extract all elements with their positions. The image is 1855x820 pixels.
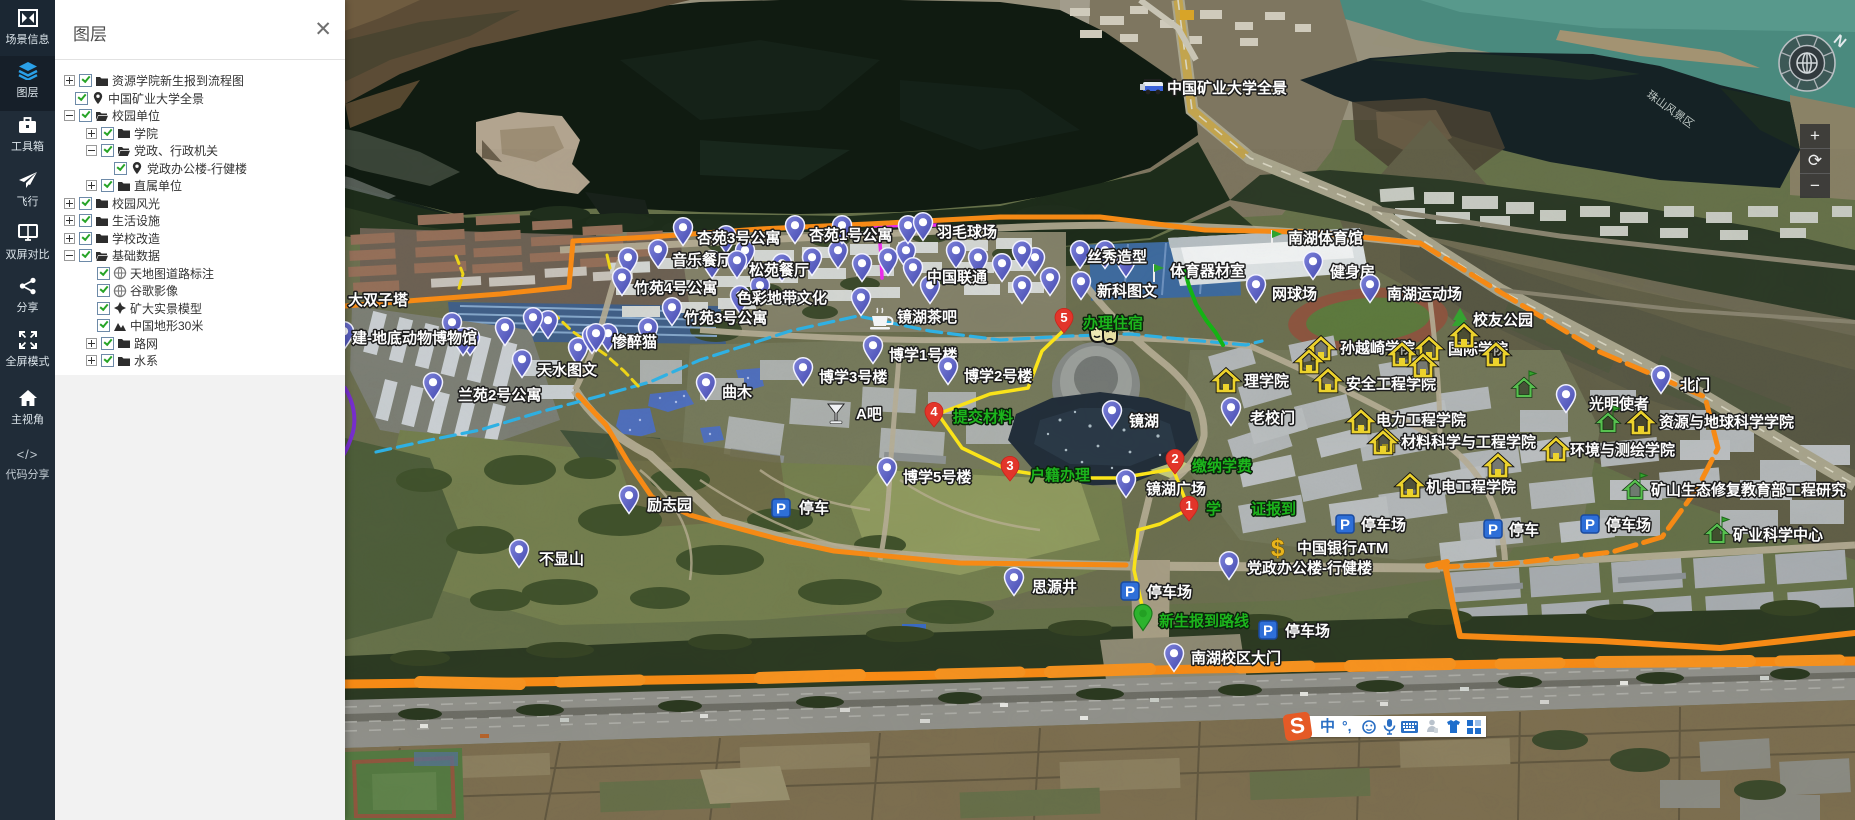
svg-text:杏苑1号公寓: 杏苑1号公寓 — [808, 226, 892, 244]
svg-text:环境与测绘学院: 环境与测绘学院 — [1570, 441, 1675, 459]
svg-text:大双子塔: 大双子塔 — [348, 291, 409, 309]
svg-text:停车: 停车 — [1509, 521, 1539, 539]
svg-text:镜湖: 镜湖 — [1129, 412, 1159, 430]
svg-text:博学5号楼: 博学5号楼 — [903, 468, 971, 486]
svg-text:矿业科学中心: 矿业科学中心 — [1733, 526, 1823, 544]
svg-text:$: $ — [1271, 535, 1285, 562]
svg-text:材料科学与工程学院: 材料科学与工程学院 — [1401, 433, 1536, 451]
svg-text:1: 1 — [1185, 498, 1192, 513]
svg-text:电力工程学院: 电力工程学院 — [1376, 411, 1466, 429]
svg-text:老校门: 老校门 — [1249, 409, 1295, 427]
svg-text:证报到: 证报到 — [1251, 500, 1296, 518]
svg-text:竹苑4号公寓: 竹苑4号公寓 — [633, 279, 717, 297]
svg-text:2: 2 — [1171, 451, 1178, 466]
svg-text:天水图文: 天水图文 — [537, 361, 598, 379]
svg-text:停车场: 停车场 — [1285, 622, 1330, 640]
svg-text:不显山: 不显山 — [539, 551, 584, 568]
svg-text:曲木: 曲木 — [722, 383, 753, 401]
svg-text:北门: 北门 — [1680, 376, 1710, 394]
svg-text:停车场: 停车场 — [1361, 516, 1406, 534]
svg-text:中国联通: 中国联通 — [927, 268, 987, 286]
svg-text:新科图文: 新科图文 — [1097, 282, 1158, 300]
svg-text:镜湖广场: 镜湖广场 — [1146, 480, 1206, 498]
svg-text:提交材料: 提交材料 — [953, 408, 1013, 426]
svg-text:机电工程学院: 机电工程学院 — [1426, 478, 1516, 496]
svg-text:南湖体育馆: 南湖体育馆 — [1288, 229, 1363, 247]
svg-text:4: 4 — [930, 404, 938, 419]
svg-text:思源井: 思源井 — [1032, 578, 1077, 596]
svg-text:党政办公楼-行健楼: 党政办公楼-行健楼 — [1247, 559, 1372, 577]
svg-text:体育器材室: 体育器材室 — [1170, 262, 1245, 280]
svg-text:新生报到路线: 新生报到路线 — [1159, 612, 1249, 630]
svg-text:校友公园: 校友公园 — [1473, 311, 1533, 329]
svg-text:N: N — [1830, 31, 1849, 51]
svg-text:博学3号楼: 博学3号楼 — [819, 368, 887, 386]
svg-text:停车: 停车 — [799, 499, 829, 517]
svg-text:资源与地球科学学院: 资源与地球科学学院 — [1659, 413, 1794, 431]
svg-text:A吧: A吧 — [856, 406, 882, 423]
svg-text:博学2号楼: 博学2号楼 — [964, 367, 1032, 385]
svg-text:矿山生态修复教育部工程研究: 矿山生态修复教育部工程研究 — [1651, 481, 1846, 499]
svg-text:停车场: 停车场 — [1147, 583, 1192, 601]
svg-text:松苑餐厅: 松苑餐厅 — [749, 261, 809, 279]
svg-text:南湖校区大门: 南湖校区大门 — [1191, 649, 1281, 667]
svg-text:停车场: 停车场 — [1606, 516, 1651, 534]
svg-text:学: 学 — [1206, 500, 1221, 518]
svg-text:励志园: 励志园 — [647, 496, 692, 514]
svg-text:3: 3 — [1006, 458, 1013, 473]
svg-text:网球场: 网球场 — [1272, 285, 1317, 303]
svg-text:户籍办理: 户籍办理 — [1030, 466, 1090, 484]
svg-text:惨醉猫: 惨醉猫 — [612, 333, 657, 351]
svg-text:办理住宿: 办理住宿 — [1083, 314, 1143, 332]
svg-text:兰苑2号公寓: 兰苑2号公寓 — [458, 386, 541, 404]
svg-text:5: 5 — [1060, 310, 1067, 325]
svg-text:理学院: 理学院 — [1244, 372, 1289, 390]
svg-text:音乐餐厅: 音乐餐厅 — [672, 251, 732, 269]
svg-text:建-地底动物博物馆: 建-地底动物博物馆 — [352, 329, 477, 347]
svg-text:杏苑3号公寓: 杏苑3号公寓 — [696, 229, 780, 247]
svg-text:丝秀造型: 丝秀造型 — [1087, 248, 1147, 266]
svg-text:中国矿业大学全景: 中国矿业大学全景 — [1167, 79, 1287, 97]
svg-text:缴纳学费: 缴纳学费 — [1192, 457, 1252, 475]
svg-text:竹苑3号公寓: 竹苑3号公寓 — [683, 309, 767, 327]
svg-text:镜湖茶吧: 镜湖茶吧 — [897, 308, 957, 326]
svg-text:南湖运动场: 南湖运动场 — [1387, 285, 1462, 303]
svg-text:中国银行ATM: 中国银行ATM — [1297, 539, 1388, 557]
svg-text:羽毛球场: 羽毛球场 — [937, 223, 997, 241]
svg-text:色彩地带文化: 色彩地带文化 — [737, 289, 827, 307]
